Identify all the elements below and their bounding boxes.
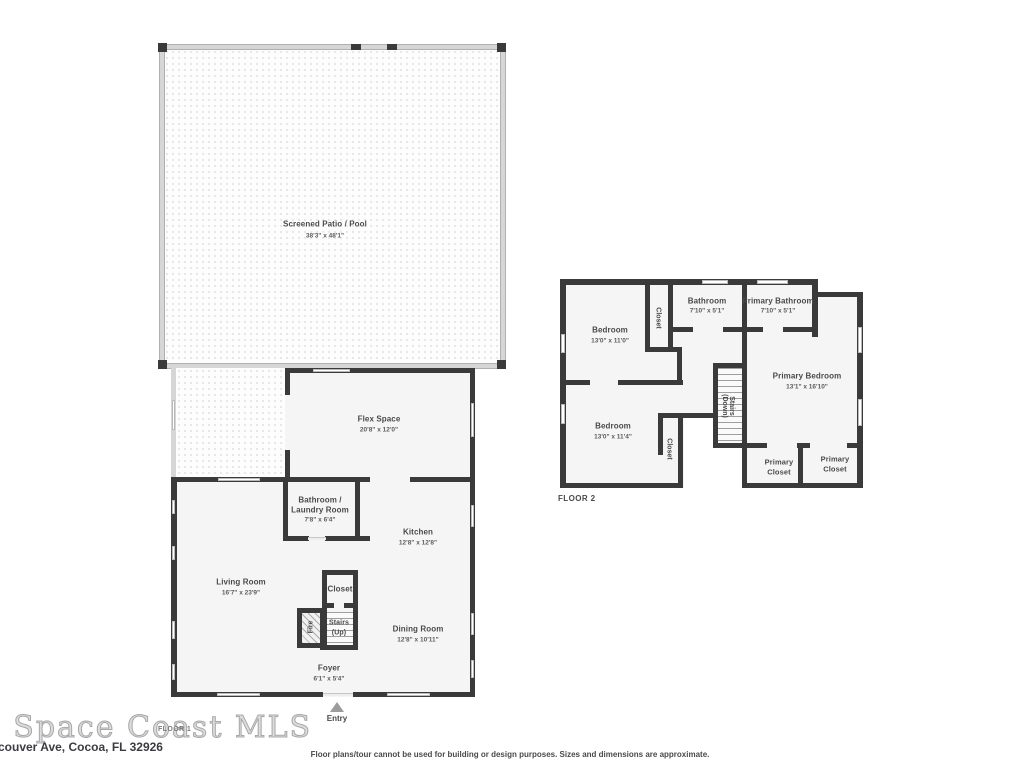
window bbox=[217, 693, 260, 696]
wall-segment bbox=[322, 645, 358, 650]
room-label-fireplace: Fire bbox=[308, 621, 315, 634]
property-address: couver Ave, Cocoa, FL 32926 bbox=[0, 740, 163, 754]
patio-corner bbox=[497, 43, 506, 52]
wall-segment bbox=[560, 483, 683, 488]
patio-door-post bbox=[387, 44, 397, 50]
wall-segment bbox=[742, 483, 863, 488]
room-label-bedroom2: Bedroom bbox=[595, 422, 631, 431]
wall-segment bbox=[283, 536, 309, 541]
wall-segment bbox=[645, 285, 650, 352]
room-dims-dining: 12'8" x 10'11" bbox=[397, 637, 438, 644]
room-dims-foyer: 6'1" x 5'4" bbox=[314, 676, 345, 683]
room-dims-living: 16'7" x 23'9" bbox=[222, 590, 260, 597]
entry-door-opening bbox=[323, 693, 353, 696]
wall-segment bbox=[742, 443, 767, 448]
window bbox=[387, 693, 430, 696]
room-label-patio: Screened Patio / Pool bbox=[283, 220, 367, 229]
room-label-primary-bathroom: Primary Bathroom bbox=[742, 297, 813, 306]
wall-segment bbox=[742, 332, 747, 488]
wall-segment bbox=[857, 292, 863, 488]
wall-segment bbox=[747, 327, 763, 332]
bathroom-door-opening bbox=[308, 537, 326, 540]
room-label-bedroom1: Bedroom bbox=[592, 326, 628, 335]
wall-segment bbox=[812, 292, 863, 297]
window bbox=[218, 478, 260, 481]
wall-segment bbox=[783, 327, 818, 332]
wall-segment bbox=[678, 413, 683, 488]
window bbox=[471, 403, 474, 437]
wall-segment bbox=[658, 413, 663, 455]
wall-segment bbox=[677, 352, 682, 385]
room-label-primary-closet-left: Primary bbox=[765, 458, 794, 467]
floor2-label: FLOOR 2 bbox=[558, 494, 595, 503]
room-label-primary-closet-left: Closet bbox=[767, 468, 791, 477]
room-label-primary-closet-right: Primary bbox=[821, 455, 850, 464]
wall-segment bbox=[353, 570, 358, 650]
exterior-notch bbox=[684, 418, 714, 488]
patio-corner bbox=[497, 360, 506, 369]
room-label-closet-bottom: Closet bbox=[666, 438, 673, 459]
room-label-dining: Dining Room bbox=[393, 625, 444, 634]
wall-segment bbox=[325, 536, 370, 541]
room-label-bath-laundry: Bathroom / bbox=[298, 496, 341, 505]
room-dims-flex: 20'8" x 12'0" bbox=[360, 427, 398, 434]
wall-segment bbox=[285, 368, 290, 395]
window bbox=[172, 546, 175, 560]
room-dims-primary-bedroom: 13'1" x 16'10" bbox=[786, 384, 828, 391]
window bbox=[172, 621, 175, 639]
room-dims-kitchen: 12'8" x 12'8" bbox=[399, 540, 437, 547]
wall-segment bbox=[668, 327, 693, 332]
room-dims-patio: 38'3" x 48'1" bbox=[306, 233, 344, 240]
wall-segment bbox=[742, 279, 747, 332]
window bbox=[172, 400, 175, 430]
wall-segment bbox=[798, 448, 803, 483]
window bbox=[561, 404, 565, 424]
wall-segment bbox=[560, 380, 590, 385]
room-label-kitchen: Kitchen bbox=[403, 528, 433, 537]
stairs-up-steps bbox=[327, 612, 353, 645]
window bbox=[858, 399, 862, 426]
room-label-living: Living Room bbox=[216, 578, 266, 587]
room-dims-bath-laundry: 7'8" x 6'4" bbox=[305, 517, 336, 524]
floor-plan-canvas: Screened Patio / Pool 38'3" x 48'1" Flex… bbox=[0, 0, 1024, 768]
wall-segment bbox=[658, 413, 718, 418]
window bbox=[471, 660, 474, 678]
room-dims-bathroom: 7'10" x 5'1" bbox=[690, 308, 725, 315]
room-label-stairs-up: (Up) bbox=[332, 630, 346, 637]
window bbox=[858, 327, 862, 353]
room-label-stairs-down: Stairs (Down) bbox=[721, 394, 735, 418]
wall-segment bbox=[171, 477, 370, 482]
window bbox=[313, 369, 350, 372]
patio-door-post bbox=[351, 44, 361, 50]
room-label-primary-closet-right: Closet bbox=[823, 465, 847, 474]
room-label-foyer: Foyer bbox=[318, 664, 340, 673]
patio-corner bbox=[158, 360, 167, 369]
wall-segment bbox=[320, 608, 327, 650]
room-dims-bedroom2: 13'0" x 11'4" bbox=[594, 434, 632, 441]
room-label-bath-laundry: Laundry Room bbox=[291, 506, 349, 515]
stairs-down-line1: Stairs bbox=[728, 394, 735, 418]
wall-segment bbox=[618, 380, 683, 385]
patio-corner bbox=[158, 43, 167, 52]
wall-segment bbox=[355, 477, 360, 541]
room-dims-bedroom1: 13'0" x 11'0" bbox=[591, 338, 629, 345]
window bbox=[471, 613, 474, 635]
exterior-notch bbox=[713, 448, 742, 488]
wall-segment bbox=[283, 477, 288, 541]
wall-segment bbox=[847, 443, 863, 448]
window bbox=[172, 664, 175, 680]
entry-label: Entry bbox=[327, 714, 347, 723]
entry-arrow-icon bbox=[330, 702, 344, 712]
room-label-primary-bedroom: Primary Bedroom bbox=[773, 372, 842, 381]
window bbox=[702, 280, 728, 284]
room-label-bathroom: Bathroom bbox=[688, 297, 727, 306]
wall-segment bbox=[668, 285, 673, 347]
room-label-stairs-up: Stairs bbox=[329, 620, 349, 627]
window bbox=[561, 334, 565, 353]
wall-segment bbox=[344, 603, 358, 608]
room-label-closet: Closet bbox=[327, 585, 352, 594]
wall-segment bbox=[285, 450, 290, 477]
window bbox=[757, 280, 788, 284]
window bbox=[172, 500, 175, 514]
room-dims-primary-bathroom: 7'10" x 5'1" bbox=[761, 308, 796, 315]
floor1-label: FLOOR 1 bbox=[158, 726, 191, 733]
screened-patio-area bbox=[160, 45, 505, 368]
stairs-down-line2: (Down) bbox=[721, 394, 728, 418]
screened-patio-extension bbox=[171, 368, 285, 477]
wall-segment bbox=[410, 477, 475, 482]
room-label-closet-top: Closet bbox=[655, 307, 662, 328]
disclaimer-text: Floor plans/tour cannot be used for buil… bbox=[311, 750, 710, 759]
room-label-flex: Flex Space bbox=[358, 415, 401, 424]
window bbox=[471, 505, 474, 527]
